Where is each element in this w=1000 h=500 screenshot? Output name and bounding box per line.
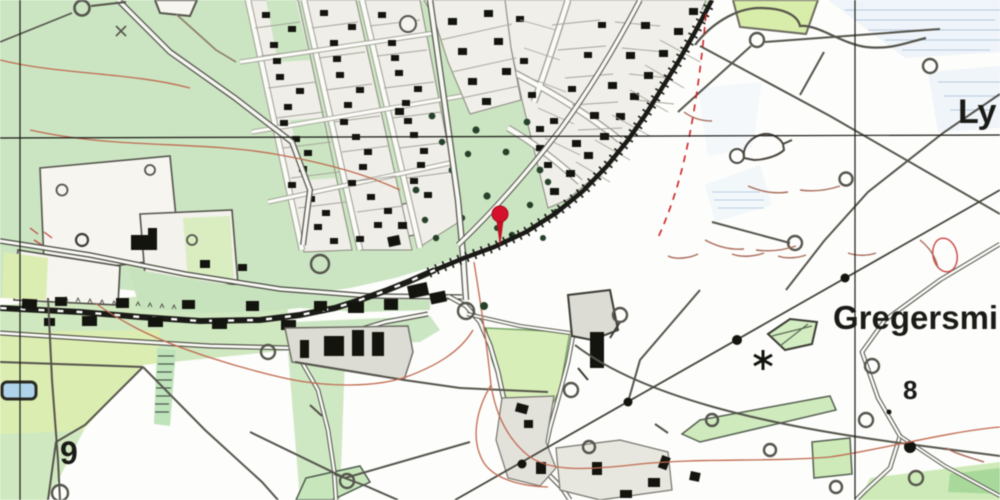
svg-text:Ly: Ly bbox=[958, 93, 997, 131]
svg-text:Gregersmi: Gregersmi bbox=[833, 299, 998, 336]
svg-text:8: 8 bbox=[903, 375, 917, 405]
svg-text:9: 9 bbox=[60, 435, 78, 471]
